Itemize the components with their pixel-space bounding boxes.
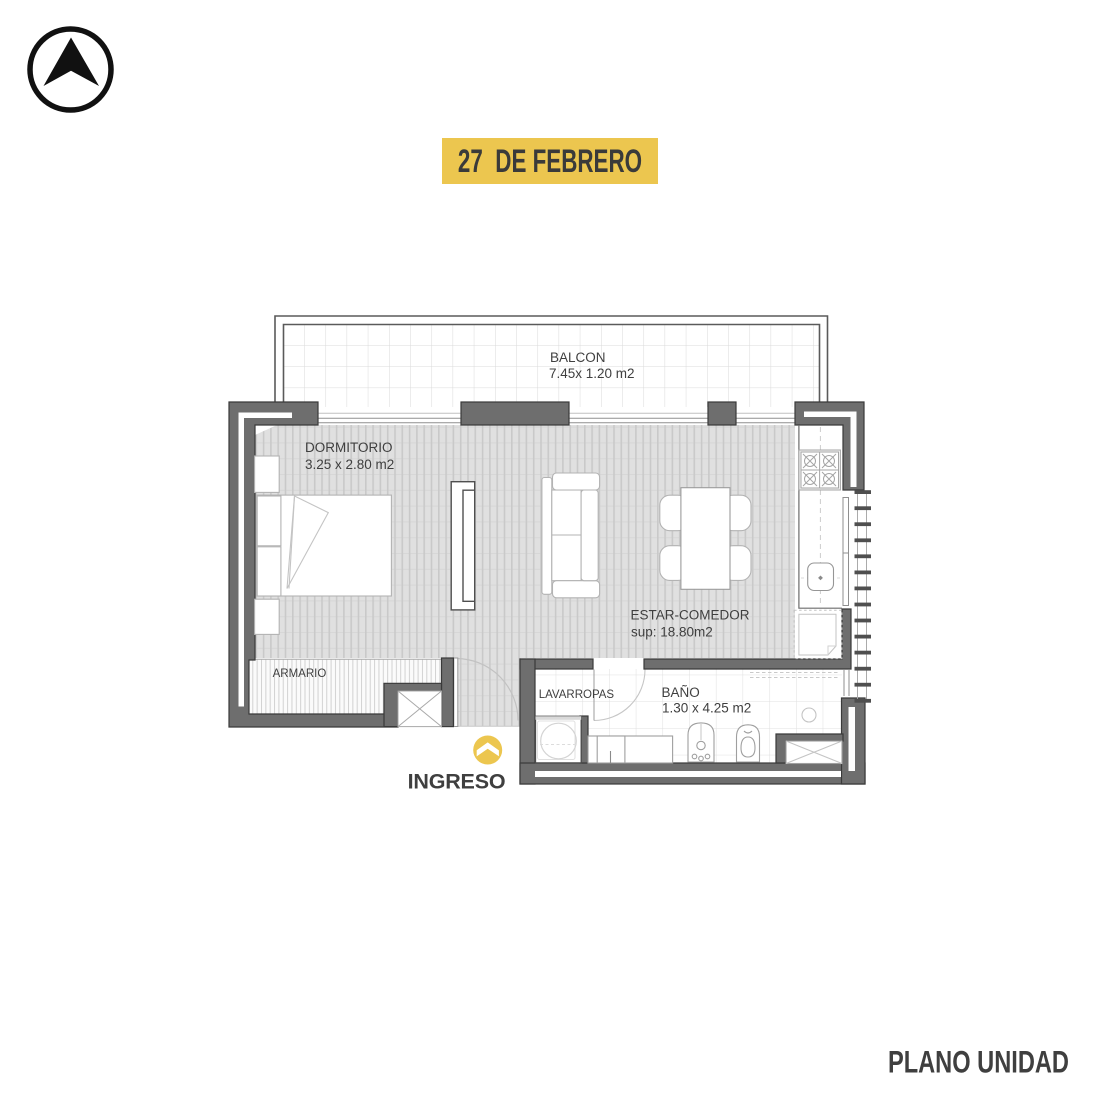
svg-text:BAÑO: BAÑO [662, 685, 700, 700]
svg-text:LAVARROPAS: LAVARROPAS [539, 689, 615, 701]
svg-text:sup: 18.80m2: sup: 18.80m2 [631, 625, 713, 640]
svg-text:3.25 x 2.80 m2: 3.25 x 2.80 m2 [305, 457, 394, 472]
svg-text:27 DE FEBRERO: 27 DE FEBRERO [458, 143, 642, 179]
svg-text:ARMARIO: ARMARIO [273, 668, 327, 680]
svg-text:PLANO UNIDAD: PLANO UNIDAD [888, 1044, 1069, 1079]
svg-text:INGRESO: INGRESO [408, 770, 506, 794]
svg-text:7.45x 1.20 m2: 7.45x 1.20 m2 [549, 366, 635, 381]
svg-text:1.30 x 4.25 m2: 1.30 x 4.25 m2 [662, 701, 751, 716]
svg-text:DORMITORIO: DORMITORIO [305, 440, 393, 455]
svg-text:BALCON: BALCON [550, 350, 606, 365]
svg-text:ESTAR-COMEDOR: ESTAR-COMEDOR [631, 608, 750, 623]
